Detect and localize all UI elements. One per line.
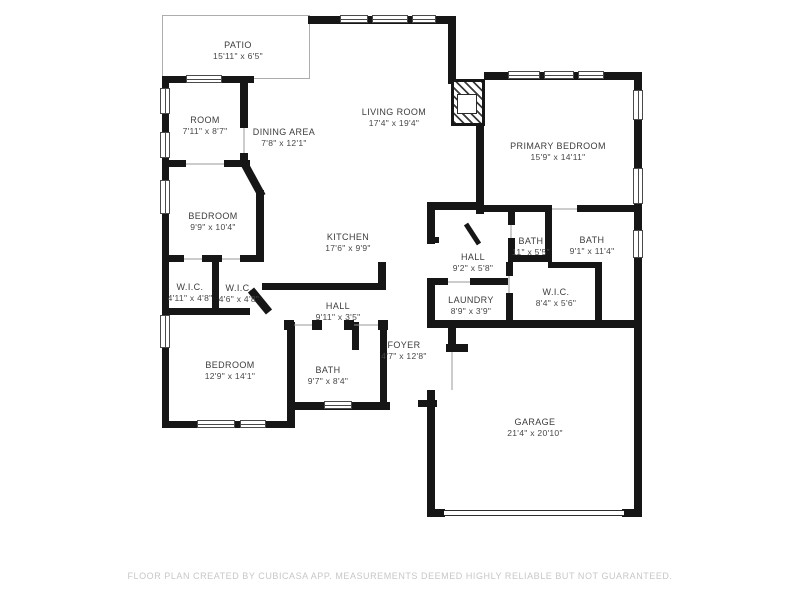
window-mullion xyxy=(638,91,639,119)
patio-outline xyxy=(162,15,310,79)
room-dims: 4'11" x 4'8" xyxy=(168,293,213,304)
window-mullion xyxy=(165,133,166,157)
room-name: BEDROOM xyxy=(188,211,237,222)
wall-segment xyxy=(312,320,322,330)
wall-segment xyxy=(448,16,456,84)
window-mullion xyxy=(165,181,166,213)
floor-plan-image: PATIO 15'11" x 6'5" ROOM 7'11" x 8'7" DI… xyxy=(0,0,800,600)
fireplace-firebox xyxy=(457,94,477,114)
wall-segment xyxy=(202,255,222,262)
window-mullion xyxy=(241,424,265,425)
room-name: BATH xyxy=(570,235,615,246)
room-name: BEDROOM xyxy=(205,360,256,371)
room-dims: 7'8" x 12'1" xyxy=(253,138,315,149)
room-name: W.I.C. xyxy=(219,283,259,294)
wall-segment xyxy=(162,76,169,428)
wall-segment xyxy=(595,262,602,320)
window xyxy=(160,180,170,214)
room-label-wic-2: W.I.C. 4'6" x 4'8" xyxy=(219,283,259,305)
room-label-wic-1: W.I.C. 4'11" x 4'8" xyxy=(168,282,213,304)
wall-segment xyxy=(427,278,435,322)
room-label-room: ROOM 7'11" x 8'7" xyxy=(183,115,228,137)
room-label-bath-hall: BATH 9'7" x 8'4" xyxy=(308,365,348,387)
room-dims: 17'6" x 9'9" xyxy=(325,243,371,254)
wall-segment xyxy=(484,205,552,212)
room-name: FOYER xyxy=(381,340,427,351)
room-name: LIVING ROOM xyxy=(362,107,426,118)
window-mullion xyxy=(638,231,639,257)
room-dims: 8'4" x 5'6" xyxy=(536,298,576,309)
room-label-primary-bedroom: PRIMARY BEDROOM 15'9" x 14'11" xyxy=(510,141,606,163)
wall-segment xyxy=(427,237,439,243)
room-label-garage: GARAGE 21'4" x 20'10" xyxy=(507,417,563,439)
room-label-hall-upper: HALL 9'2" x 5'8" xyxy=(453,252,493,274)
wall-segment xyxy=(470,278,508,285)
wall-segment xyxy=(162,160,186,167)
wall-segment xyxy=(287,322,295,428)
garage-door xyxy=(444,510,624,516)
room-name: W.I.C. xyxy=(168,282,213,293)
window xyxy=(508,71,540,79)
room-name: DINING AREA xyxy=(253,127,315,138)
door-leaf xyxy=(466,224,479,244)
wall-segment xyxy=(446,344,468,352)
room-label-bedroom-1: BEDROOM 9'9" x 10'4" xyxy=(188,211,237,233)
room-label-wic-3: W.I.C. 8'4" x 5'6" xyxy=(536,287,576,309)
wall-segment xyxy=(224,160,250,167)
window xyxy=(340,15,368,23)
room-label-laundry: LAUNDRY 8'9" x 3'9" xyxy=(448,295,494,317)
room-label-foyer: FOYER 4'7" x 12'8" xyxy=(381,340,427,362)
window-mullion xyxy=(413,19,435,20)
window xyxy=(160,88,170,114)
window-mullion xyxy=(373,19,407,20)
room-label-bedroom-2: BEDROOM 12'9" x 14'1" xyxy=(205,360,256,382)
window xyxy=(578,71,604,79)
room-name: KITCHEN xyxy=(325,232,371,243)
window xyxy=(324,401,352,409)
window-mullion xyxy=(187,79,221,80)
window xyxy=(160,315,170,348)
window xyxy=(372,15,408,23)
window xyxy=(186,75,222,83)
window xyxy=(240,420,266,428)
wall-segment xyxy=(262,283,386,290)
wall-segment xyxy=(548,262,598,268)
room-dims: 9'7" x 8'4" xyxy=(308,376,348,387)
room-dims: 9'1" x 11'4" xyxy=(570,246,615,257)
wall-segment xyxy=(506,262,513,276)
window xyxy=(633,230,643,258)
floor-plan: PATIO 15'11" x 6'5" ROOM 7'11" x 8'7" DI… xyxy=(0,0,800,600)
room-name: W.I.C. xyxy=(536,287,576,298)
window-mullion xyxy=(545,75,573,76)
wall-segment xyxy=(427,202,484,210)
room-name: HALL xyxy=(453,252,493,263)
window-mullion xyxy=(638,169,639,203)
room-dims: 9'9" x 10'4" xyxy=(188,222,237,233)
room-label-dining-area: DINING AREA 7'8" x 12'1" xyxy=(253,127,315,149)
room-dims: 4'6" x 4'8" xyxy=(219,294,259,305)
wall-segment xyxy=(427,509,445,517)
wall-segment xyxy=(380,322,387,410)
wall-segment xyxy=(506,293,513,322)
room-label-living-room: LIVING ROOM 17'4" x 19'4" xyxy=(362,107,426,129)
wall-segment xyxy=(577,205,639,212)
room-dims: 21'4" x 20'10" xyxy=(507,428,563,439)
window xyxy=(633,168,643,204)
window-mullion xyxy=(325,405,351,406)
room-name: LAUNDRY xyxy=(448,295,494,306)
window-mullion xyxy=(165,89,166,113)
wall-segment xyxy=(508,255,552,262)
wall-segment xyxy=(256,190,264,262)
wall-segment xyxy=(508,205,515,225)
room-dims: 15'9" x 14'11" xyxy=(510,152,606,163)
window-mullion xyxy=(509,75,539,76)
room-dims: 7'11" x 8'7" xyxy=(183,126,228,137)
room-name: ROOM xyxy=(183,115,228,126)
window xyxy=(633,90,643,120)
wall-segment xyxy=(378,262,386,290)
window xyxy=(197,420,235,428)
room-name: GARAGE xyxy=(507,417,563,428)
wall-segment xyxy=(418,400,437,407)
wall-segment xyxy=(427,390,435,516)
room-label-kitchen: KITCHEN 17'6" x 9'9" xyxy=(325,232,371,254)
wall-segment xyxy=(240,255,264,262)
room-dims: 12'9" x 14'1" xyxy=(205,371,256,382)
wall-segment xyxy=(218,308,250,315)
wall-segment xyxy=(427,320,642,328)
room-label-bath-primary: BATH 9'1" x 11'4" xyxy=(570,235,615,257)
wall-segment xyxy=(240,76,248,128)
wall-segment xyxy=(162,255,184,262)
wall-segment xyxy=(352,322,359,350)
window-mullion xyxy=(198,424,234,425)
window xyxy=(544,71,574,79)
room-name: PRIMARY BEDROOM xyxy=(510,141,606,152)
wall-segment xyxy=(634,328,642,517)
room-dims: 9'2" x 5'8" xyxy=(453,263,493,274)
wall-segment xyxy=(476,122,484,214)
window xyxy=(160,132,170,158)
fireplace xyxy=(451,79,485,126)
window-mullion xyxy=(579,75,603,76)
wall-segment xyxy=(162,308,220,315)
window xyxy=(412,15,436,23)
disclaimer-text: FLOOR PLAN CREATED BY CUBICASA APP. MEAS… xyxy=(127,571,672,581)
chamfer-wall xyxy=(251,290,269,312)
window-mullion xyxy=(165,316,166,347)
room-name: BATH xyxy=(308,365,348,376)
room-dims: 17'4" x 19'4" xyxy=(362,118,426,129)
doors-overlay xyxy=(0,0,800,600)
wall-segment xyxy=(545,205,552,262)
window-mullion xyxy=(341,19,367,20)
room-dims: 8'9" x 3'9" xyxy=(448,306,494,317)
room-dims: 4'7" x 12'8" xyxy=(381,351,427,362)
room-name: HALL xyxy=(316,301,361,312)
